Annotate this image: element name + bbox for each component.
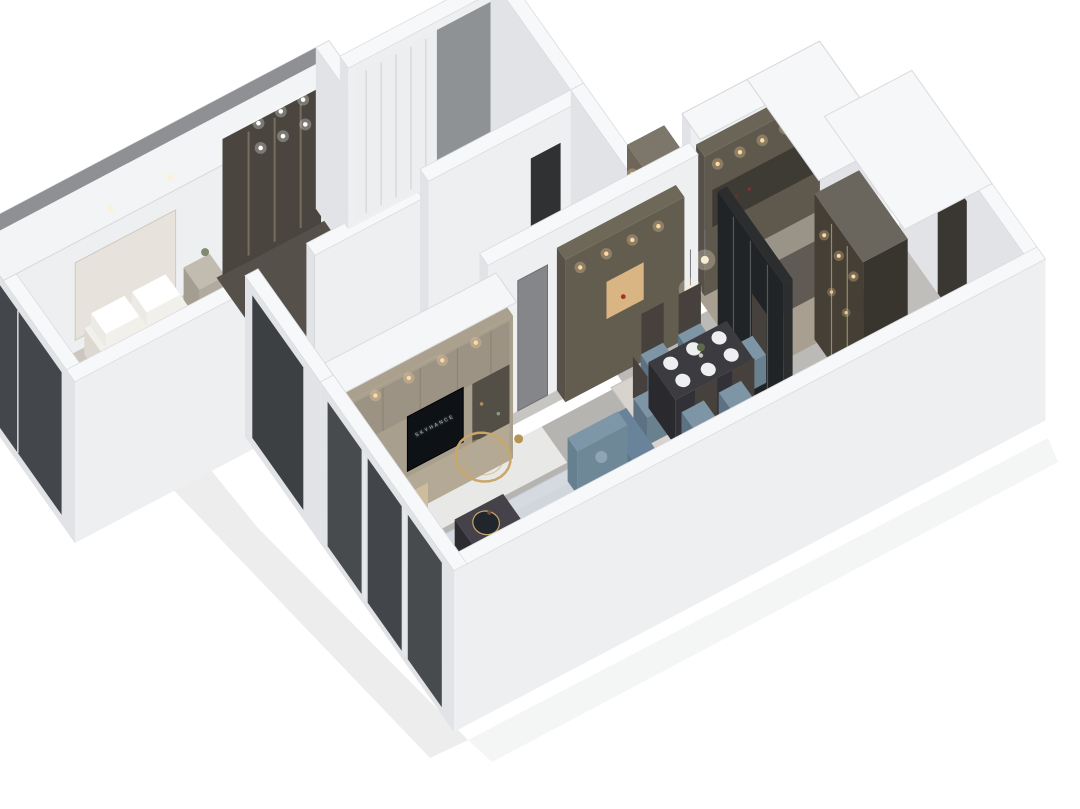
kitchen-downlight-3 [760, 138, 764, 142]
closet-downlight-6 [278, 109, 283, 114]
closet-downlight-3 [303, 122, 308, 127]
closet-downlight-1 [258, 146, 263, 151]
master-ceiling-spot-1 [109, 206, 113, 210]
display-cabinet-light-5 [830, 290, 833, 293]
closet-downlight-7 [301, 97, 306, 102]
bathroom-nw-wall-left-face [340, 56, 349, 229]
sw-window-wall-front-face [454, 564, 467, 732]
display-cabinet-light-2 [837, 254, 841, 258]
table-centerpiece-vase [699, 353, 703, 357]
display-cabinet-light-4 [844, 311, 847, 314]
hall-door [518, 265, 548, 411]
closet-downlight-2 [281, 134, 286, 139]
kitchen-downlight-2 [738, 150, 742, 154]
master-ceiling-spot-2 [168, 175, 172, 179]
gold-dish [514, 434, 523, 443]
sideboard-downlight-3 [630, 238, 634, 242]
nightstand-plant [201, 248, 209, 256]
tray-decor [487, 511, 491, 515]
apartment-3d-floorplan-render: SKYHANCE [0, 0, 1080, 809]
sofa-throw-pillow-1 [595, 451, 607, 463]
tv-wall-downlight-4 [474, 340, 478, 344]
master-se-wall-left-face [66, 370, 75, 543]
shelf-decor-2 [497, 412, 501, 416]
sideboard-downlight-1 [578, 265, 582, 269]
tv-wall-downlight-3 [440, 358, 444, 362]
sideboard-downlight-4 [656, 224, 660, 228]
coffee-table-tray [473, 511, 500, 535]
sideboard-red-decor [621, 294, 626, 299]
table-centerpiece-flowers [697, 343, 705, 351]
scene-canvas [0, 0, 1080, 809]
tv-wall-downlight-1 [373, 393, 377, 397]
display-cabinet-light-3 [822, 233, 826, 237]
sideboard-downlight-2 [604, 251, 608, 255]
wine-bottle-3 [748, 187, 752, 191]
wine-bottle-2 [735, 194, 739, 198]
closet-downlight-5 [256, 121, 261, 126]
dining-sideboard-left-face [557, 248, 566, 403]
shelf-decor-1 [480, 402, 484, 406]
tv-wall-downlight-2 [407, 376, 411, 380]
pendant-globe-2 [701, 256, 709, 264]
kitchen-downlight-1 [715, 162, 719, 166]
display-cabinet-light-1 [851, 274, 855, 278]
